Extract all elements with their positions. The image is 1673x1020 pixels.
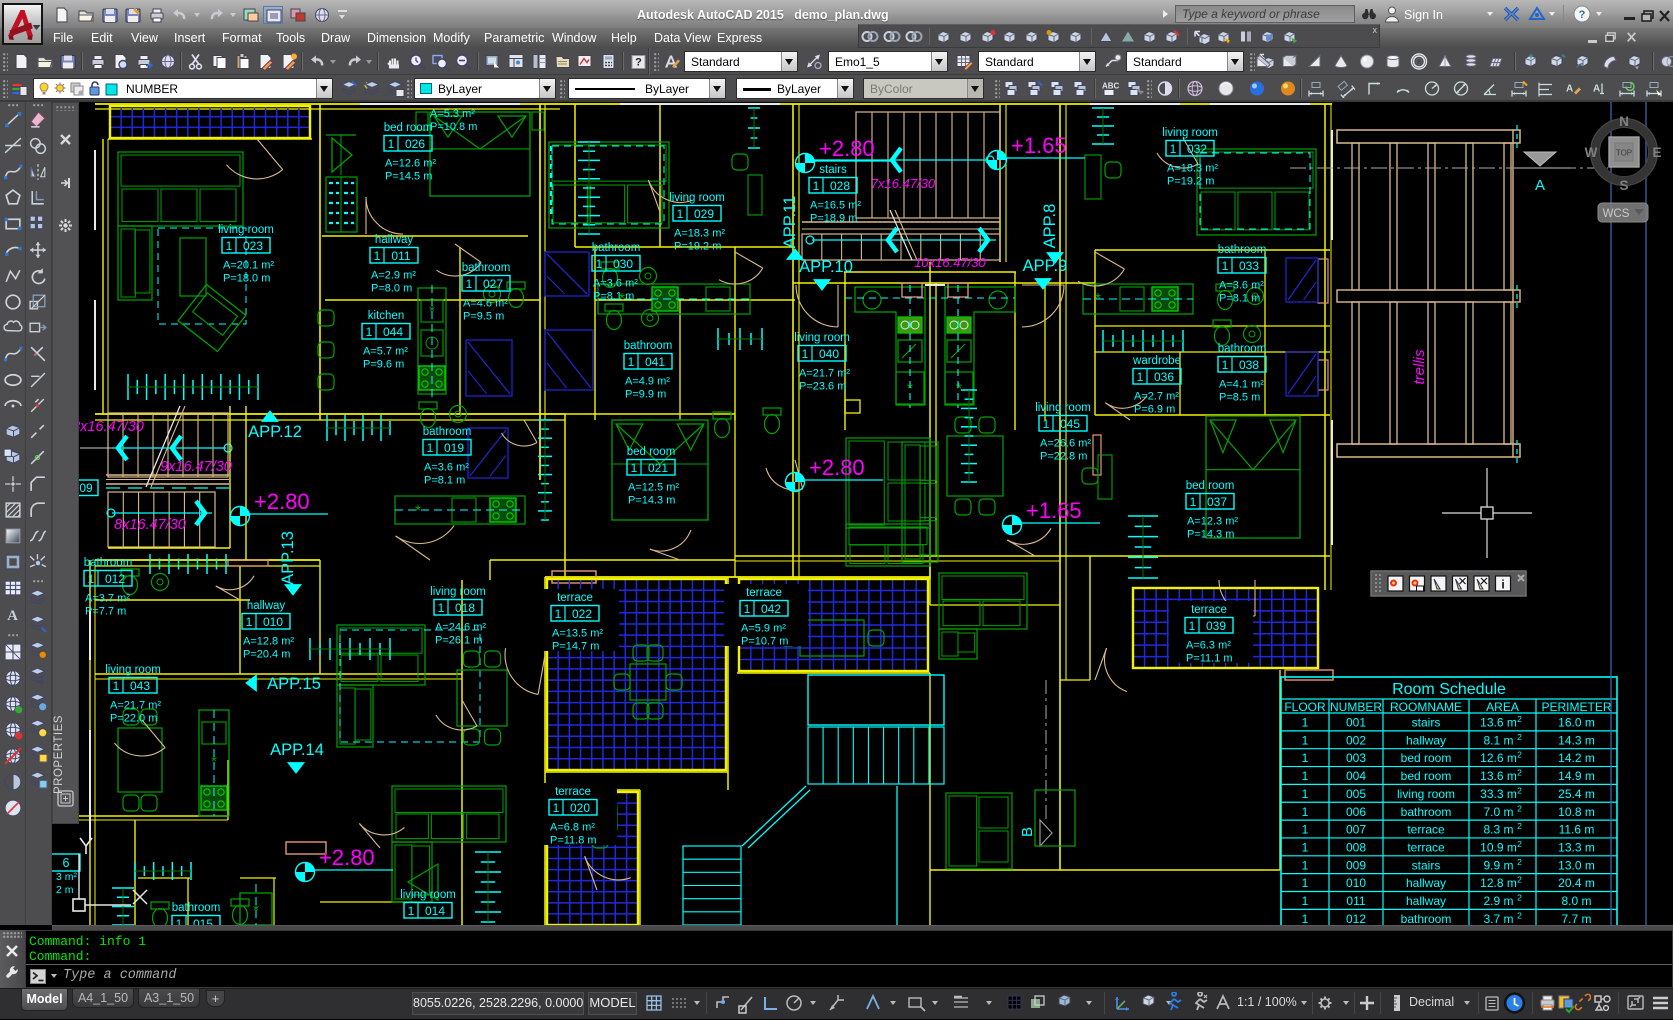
svg-text:002: 002	[1346, 733, 1366, 747]
svg-text:1: 1	[1302, 716, 1309, 730]
svg-text:038: 038	[1239, 358, 1259, 372]
svg-text:B: B	[1019, 827, 1036, 837]
svg-text:terrace: terrace	[1407, 823, 1445, 837]
svg-text:1: 1	[427, 441, 434, 455]
svg-text:living room: living room	[400, 889, 456, 901]
svg-text:6: 6	[63, 856, 70, 870]
svg-text:9x16.47/30: 9x16.47/30	[160, 459, 232, 475]
svg-text:1: 1	[1302, 823, 1309, 837]
svg-text:1: 1	[246, 615, 253, 629]
svg-text:2.9 m: 2.9 m	[1483, 894, 1513, 908]
svg-text:1: 1	[1302, 805, 1309, 819]
svg-text:bathroom: bathroom	[462, 262, 511, 274]
svg-text:P=19.2 m: P=19.2 m	[1167, 176, 1214, 188]
svg-text:1: 1	[596, 257, 603, 271]
svg-text:A=4.9 m²: A=4.9 m²	[625, 376, 670, 388]
svg-text:10.8 m: 10.8 m	[1558, 805, 1595, 819]
svg-text:*: *	[415, 503, 421, 520]
svg-text:A: A	[1535, 177, 1545, 194]
svg-text:+2.80: +2.80	[254, 489, 310, 514]
svg-text:bathroom: bathroom	[624, 340, 673, 352]
svg-text:A=26.6 m²: A=26.6 m²	[1040, 438, 1091, 450]
svg-text:11.6 m: 11.6 m	[1559, 823, 1595, 837]
svg-text:036: 036	[1154, 370, 1174, 384]
svg-text:10x16.47/30: 10x16.47/30	[914, 255, 986, 270]
svg-text:Room Schedule: Room Schedule	[1392, 681, 1506, 698]
svg-text:terrace: terrace	[1407, 840, 1445, 854]
svg-text:1: 1	[374, 249, 381, 263]
svg-text:003: 003	[1346, 751, 1366, 765]
svg-text:16.0 m: 16.0 m	[1558, 716, 1595, 730]
svg-text:NUMBER: NUMBER	[1330, 700, 1382, 714]
svg-text:019: 019	[444, 441, 464, 455]
svg-text:011: 011	[391, 249, 410, 263]
svg-text:12.8 m: 12.8 m	[1480, 876, 1517, 890]
svg-text:bed room: bed room	[384, 122, 433, 134]
svg-text:bathroom: bathroom	[1218, 244, 1267, 256]
svg-text:?: ?	[1579, 9, 1586, 21]
svg-text:bed room: bed room	[1186, 480, 1235, 492]
svg-text:13.6 m: 13.6 m	[1480, 769, 1517, 783]
svg-text:018: 018	[455, 601, 475, 615]
svg-text:13.6 m: 13.6 m	[1480, 716, 1517, 730]
svg-text:1: 1	[1302, 787, 1309, 801]
svg-text:living room: living room	[1397, 787, 1455, 801]
svg-text:P=8.1 m: P=8.1 m	[424, 475, 465, 487]
svg-text:?: ?	[635, 57, 642, 69]
svg-text:014: 014	[425, 904, 445, 918]
svg-text:1: 1	[226, 239, 233, 253]
svg-text:039: 039	[1206, 619, 1226, 633]
svg-text:045: 045	[1060, 417, 1080, 431]
svg-text:A=12.5 m²: A=12.5 m²	[628, 482, 679, 494]
svg-text:7.0 m: 7.0 m	[1483, 805, 1513, 819]
svg-text:A=5.7 m²: A=5.7 m²	[363, 346, 408, 358]
svg-text:1: 1	[1222, 358, 1229, 372]
svg-text:A=6.3 m²: A=6.3 m²	[1186, 640, 1231, 652]
svg-text:1: 1	[1170, 142, 1177, 156]
svg-text:A=5.3 m²: A=5.3 m²	[430, 108, 475, 120]
svg-text:P=26.1 m: P=26.1 m	[435, 635, 482, 647]
svg-text:007: 007	[1346, 823, 1366, 837]
svg-text:P=10.8 m: P=10.8 m	[430, 121, 477, 133]
svg-text:FLOOR: FLOOR	[1284, 700, 1326, 714]
svg-text:P=22.0 m: P=22.0 m	[110, 713, 157, 725]
svg-text:2: 2	[1517, 803, 1522, 813]
svg-text:14.9 m: 14.9 m	[1558, 769, 1595, 783]
svg-text:APP.12: APP.12	[248, 423, 302, 441]
svg-text:A=16.5 m²: A=16.5 m²	[810, 200, 861, 212]
svg-text:1: 1	[1302, 912, 1309, 926]
svg-text:A=12.8 m²: A=12.8 m²	[243, 636, 294, 648]
svg-text:bathroom: bathroom	[1401, 805, 1452, 819]
svg-text:terrace: terrace	[557, 592, 593, 604]
svg-text:8x16.47/30: 8x16.47/30	[114, 517, 186, 533]
svg-text:wardrobe: wardrobe	[1132, 355, 1181, 367]
svg-text:P=23.6 m: P=23.6 m	[799, 381, 846, 393]
svg-text:1: 1	[1043, 417, 1050, 431]
svg-text:033: 033	[1239, 259, 1259, 273]
svg-text:W: W	[1585, 145, 1598, 160]
svg-text:037: 037	[1207, 495, 1227, 509]
svg-text:A=21.7 m²: A=21.7 m²	[110, 700, 161, 712]
svg-text:terrace: terrace	[1191, 604, 1227, 616]
svg-text:A=6.8 m²: A=6.8 m²	[550, 822, 595, 834]
svg-text:APP.8: APP.8	[1041, 204, 1059, 249]
svg-text:7x16.47/30: 7x16.47/30	[871, 176, 936, 191]
svg-text:010: 010	[263, 615, 283, 629]
svg-text:020: 020	[570, 801, 590, 815]
svg-text:hallway: hallway	[1406, 894, 1446, 908]
svg-text:A=2.7 m²: A=2.7 m²	[1134, 391, 1179, 403]
svg-text:P=19.2 m: P=19.2 m	[674, 241, 721, 253]
svg-text:13.3 m: 13.3 m	[1558, 840, 1595, 854]
svg-text:1: 1	[1137, 370, 1144, 384]
svg-text:1: 1	[677, 207, 684, 221]
svg-text:043: 043	[130, 679, 150, 693]
svg-text:trellis: trellis	[1411, 349, 1428, 385]
svg-text:P=9.9 m: P=9.9 m	[625, 389, 666, 401]
svg-text:12.6 m: 12.6 m	[1480, 751, 1517, 765]
svg-text:S: S	[1619, 178, 1628, 193]
svg-text:012: 012	[105, 572, 125, 586]
svg-text:bathroom: bathroom	[1401, 912, 1452, 926]
svg-text:1: 1	[1190, 495, 1197, 509]
svg-text:P=14.7 m: P=14.7 m	[552, 641, 599, 653]
svg-text:8.1 m: 8.1 m	[1483, 733, 1513, 747]
svg-text:P=10.7 m: P=10.7 m	[741, 636, 788, 648]
svg-text:A: A	[7, 608, 18, 624]
svg-text:1: 1	[1302, 751, 1309, 765]
svg-text:living room: living room	[1162, 127, 1218, 139]
svg-text:2: 2	[1517, 785, 1522, 795]
svg-text:8.3 m: 8.3 m	[1483, 823, 1513, 837]
svg-text:021: 021	[648, 461, 668, 475]
svg-text:bathroom: bathroom	[84, 557, 133, 569]
svg-text:040: 040	[819, 347, 839, 361]
svg-text:9.9 m: 9.9 m	[1483, 858, 1513, 872]
svg-text:P=11.1 m: P=11.1 m	[1186, 653, 1233, 665]
svg-text:1: 1	[1302, 769, 1309, 783]
svg-text:stairs: stairs	[1412, 858, 1441, 872]
svg-text:A=5.9 m²: A=5.9 m²	[741, 623, 786, 635]
svg-text:A=18.3 m²: A=18.3 m²	[674, 228, 725, 240]
svg-text:P=14.5 m: P=14.5 m	[385, 171, 432, 183]
svg-text:005: 005	[1346, 787, 1366, 801]
svg-text:APP.10: APP.10	[799, 258, 853, 276]
svg-text:001: 001	[1346, 716, 1366, 730]
svg-text:E: E	[1652, 145, 1661, 160]
svg-text:bed room: bed room	[1401, 751, 1452, 765]
svg-text:A=24.6 m²: A=24.6 m²	[435, 622, 486, 634]
svg-text:032: 032	[1187, 142, 1207, 156]
svg-text:living room: living room	[794, 332, 850, 344]
svg-text:7.7 m: 7.7 m	[1561, 912, 1591, 926]
svg-text:022: 022	[572, 607, 592, 621]
svg-text:2: 2	[1517, 714, 1522, 724]
svg-text:8.0 m: 8.0 m	[1561, 894, 1591, 908]
svg-text:044: 044	[383, 325, 403, 339]
svg-text:A=18.3 m²: A=18.3 m²	[1167, 163, 1218, 175]
svg-text:1: 1	[408, 904, 415, 918]
svg-text:008: 008	[1346, 840, 1366, 854]
svg-text:027: 027	[483, 277, 503, 291]
svg-text:bathroom: bathroom	[592, 242, 641, 254]
svg-text:1: 1	[88, 572, 95, 586]
svg-text:14.2 m: 14.2 m	[1558, 751, 1595, 765]
svg-text:1: 1	[555, 607, 562, 621]
svg-text:P=11.8 m: P=11.8 m	[550, 835, 597, 847]
svg-text:1: 1	[1302, 840, 1309, 854]
svg-text:living room: living room	[669, 192, 725, 204]
svg-text:living room: living room	[105, 664, 161, 676]
svg-text:A=4.1 m²: A=4.1 m²	[1219, 379, 1264, 391]
svg-text:2: 2	[1517, 732, 1522, 742]
svg-text:APP.15: APP.15	[267, 675, 321, 693]
svg-text:stairs: stairs	[819, 164, 847, 176]
svg-text:1: 1	[388, 137, 395, 151]
svg-text:P=9.5 m: P=9.5 m	[463, 311, 504, 323]
svg-text:1: 1	[1189, 619, 1196, 633]
svg-text:25.4 m: 25.4 m	[1558, 787, 1595, 801]
svg-text:004: 004	[1346, 769, 1366, 783]
svg-text:028: 028	[830, 179, 850, 193]
svg-text:P=20.4 m: P=20.4 m	[243, 649, 290, 661]
svg-text:stairs: stairs	[1412, 716, 1441, 730]
svg-text:i: i	[1501, 578, 1504, 592]
svg-text:hallway: hallway	[247, 600, 286, 612]
svg-text:P=18.0 m: P=18.0 m	[223, 273, 270, 285]
svg-text:A=2.9 m²: A=2.9 m²	[371, 270, 416, 282]
svg-text:bed room: bed room	[627, 446, 676, 458]
svg-text:P=9.6 m: P=9.6 m	[363, 359, 404, 371]
svg-text:A=12.6 m²: A=12.6 m²	[385, 158, 436, 170]
svg-text:A=3.6 m²: A=3.6 m²	[1219, 280, 1264, 292]
svg-text:10.9 m: 10.9 m	[1480, 840, 1517, 854]
svg-text:P=22.8 m: P=22.8 m	[1040, 451, 1087, 463]
svg-text:1: 1	[1302, 876, 1309, 890]
svg-text:030: 030	[613, 257, 633, 271]
svg-text:A=3.6 m²: A=3.6 m²	[593, 278, 638, 290]
svg-text:2: 2	[1517, 893, 1522, 903]
svg-text:3 m²: 3 m²	[56, 871, 78, 883]
svg-text:1: 1	[553, 801, 560, 815]
svg-text:P=8.0 m: P=8.0 m	[371, 283, 412, 295]
svg-text:P=6.9 m: P=6.9 m	[1134, 404, 1175, 416]
svg-text:TOP: TOP	[1616, 149, 1632, 158]
svg-text:kitchen: kitchen	[368, 310, 404, 322]
svg-text:1: 1	[813, 179, 820, 193]
svg-text:APP.11: APP.11	[781, 196, 799, 249]
svg-text:APP.13: APP.13	[279, 531, 297, 585]
svg-text:09: 09	[79, 481, 93, 495]
svg-text:1: 1	[628, 355, 635, 369]
svg-text:1: 1	[744, 602, 751, 616]
svg-text:1: 1	[366, 325, 373, 339]
svg-text:+1.65: +1.65	[1011, 133, 1067, 158]
svg-text:AREA: AREA	[1486, 700, 1519, 714]
svg-text:hallway: hallway	[1406, 876, 1446, 890]
svg-text:bathroom: bathroom	[1218, 343, 1267, 355]
svg-text:2: 2	[1517, 875, 1522, 885]
svg-text:A: A	[1593, 84, 1600, 95]
svg-text:P=14.3 m: P=14.3 m	[628, 495, 675, 507]
svg-text:3.7 m: 3.7 m	[1483, 912, 1513, 926]
svg-text:2: 2	[1517, 768, 1522, 778]
svg-text:A: A	[1566, 84, 1573, 95]
svg-text:14.3 m: 14.3 m	[1558, 733, 1595, 747]
svg-text:006: 006	[1346, 805, 1366, 819]
svg-text:1: 1	[1302, 733, 1309, 747]
svg-text:1: 1	[113, 679, 120, 693]
svg-text:A=4.6 m²: A=4.6 m²	[463, 298, 508, 310]
svg-text:+2.80: +2.80	[819, 136, 875, 161]
svg-text:P=18.9 m: P=18.9 m	[810, 213, 857, 225]
svg-text:A=21.7 m²: A=21.7 m²	[799, 368, 850, 380]
svg-text:bed room: bed room	[1401, 769, 1452, 783]
svg-text:+2.80: +2.80	[809, 455, 865, 480]
svg-text:2: 2	[1517, 910, 1522, 920]
svg-text:011: 011	[1346, 894, 1365, 908]
svg-text:012: 012	[1346, 912, 1366, 926]
svg-text:A=12.3 m²: A=12.3 m²	[1187, 516, 1238, 528]
svg-text:1: 1	[1302, 894, 1309, 908]
svg-text:2: 2	[1517, 857, 1522, 867]
svg-text:terrace: terrace	[746, 587, 782, 599]
svg-text:living room: living room	[218, 224, 274, 236]
svg-text:8x16.47/30: 8x16.47/30	[72, 419, 144, 435]
svg-text:terrace: terrace	[555, 786, 591, 798]
svg-text:living room: living room	[430, 586, 486, 598]
svg-text:WCS: WCS	[1603, 208, 1630, 220]
svg-text:A=13.5 m²: A=13.5 m²	[552, 628, 603, 640]
svg-text:P=8.5 m: P=8.5 m	[1219, 392, 1260, 404]
svg-text:A=3.6 m²: A=3.6 m²	[424, 462, 469, 474]
svg-text:PERIMETER: PERIMETER	[1541, 700, 1611, 714]
svg-text:+2.80: +2.80	[319, 845, 375, 870]
svg-text:029: 029	[694, 207, 714, 221]
svg-text:042: 042	[761, 602, 781, 616]
svg-text:bathroom: bathroom	[172, 902, 221, 914]
svg-text:P=14.3 m: P=14.3 m	[1187, 529, 1234, 541]
svg-text:20.4 m: 20.4 m	[1558, 876, 1595, 890]
svg-text:hallway: hallway	[1406, 733, 1446, 747]
svg-text:ROOMNAME: ROOMNAME	[1390, 700, 1462, 714]
svg-text:bathroom: bathroom	[423, 426, 472, 438]
svg-text:026: 026	[405, 137, 425, 151]
svg-text:P=8.1 m: P=8.1 m	[1219, 293, 1260, 305]
svg-text:P=8.1 m: P=8.1 m	[593, 291, 634, 303]
svg-text:N: N	[1619, 114, 1629, 129]
svg-text:1: 1	[631, 461, 638, 475]
svg-text:1: 1	[466, 277, 473, 291]
svg-text:+1.65: +1.65	[1026, 498, 1082, 523]
svg-text:2: 2	[1517, 750, 1522, 760]
svg-text:living room: living room	[1035, 402, 1091, 414]
svg-text:2: 2	[1517, 821, 1522, 831]
svg-text:A=3.7 m²: A=3.7 m²	[85, 593, 130, 605]
svg-text:2: 2	[1517, 839, 1522, 849]
svg-text:010: 010	[1346, 876, 1366, 890]
svg-text:APP.14: APP.14	[270, 741, 324, 759]
svg-text:1: 1	[1302, 858, 1309, 872]
svg-text:33.3 m: 33.3 m	[1480, 787, 1517, 801]
svg-text:1: 1	[438, 601, 445, 615]
svg-text:2 m: 2 m	[56, 884, 74, 896]
svg-text:023: 023	[243, 239, 263, 253]
svg-text:1: 1	[802, 347, 809, 361]
svg-text:APP.9: APP.9	[1023, 257, 1068, 275]
svg-text:hallway: hallway	[375, 234, 414, 246]
svg-text:A=20.1 m²: A=20.1 m²	[223, 260, 274, 272]
svg-text:009: 009	[1346, 858, 1366, 872]
svg-text:P=7.7 m: P=7.7 m	[85, 606, 126, 618]
svg-text:13.0 m: 13.0 m	[1558, 858, 1595, 872]
svg-text:1: 1	[1222, 259, 1229, 273]
svg-text:041: 041	[645, 355, 665, 369]
